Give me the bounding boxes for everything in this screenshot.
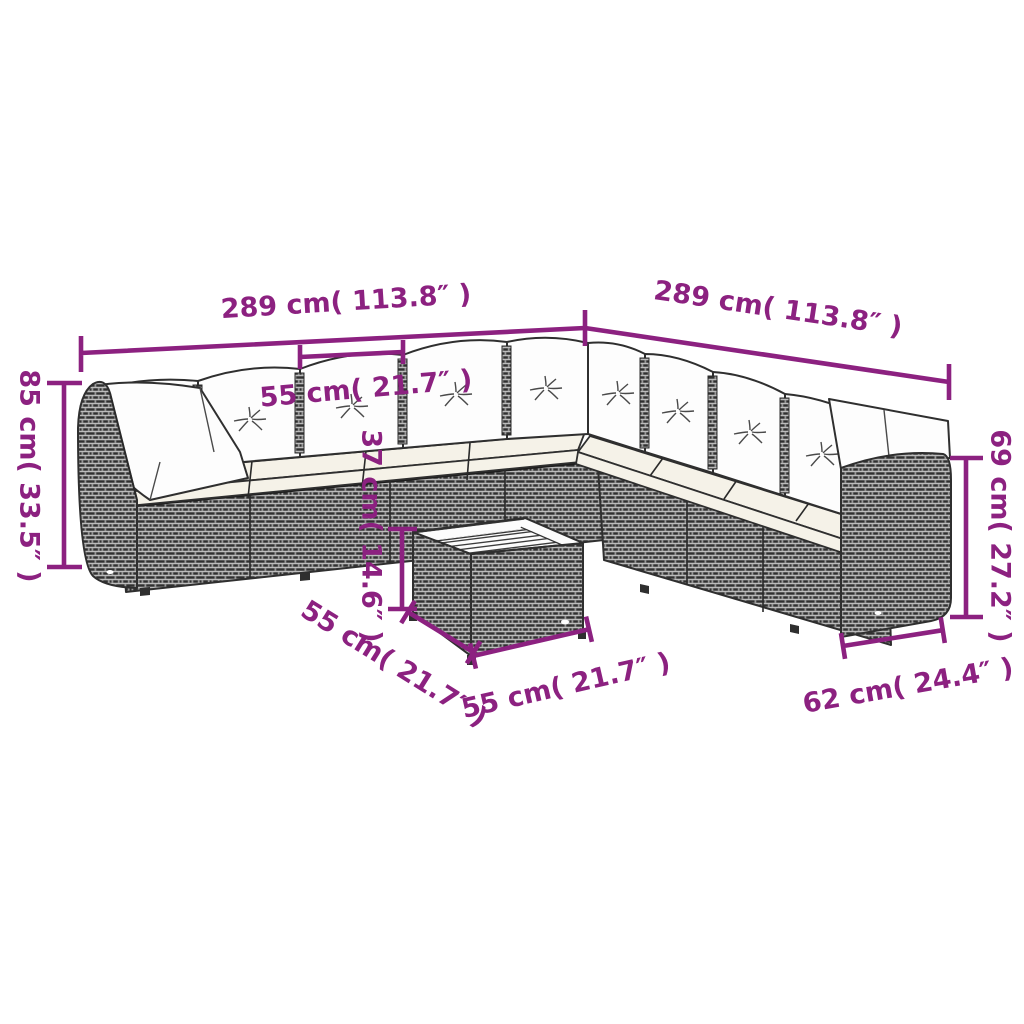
dimension-label-table-height: 37 cm( 14.6″ ) <box>356 429 387 642</box>
dimension-label-backrest-height: 69 cm( 27.2″ ) <box>985 429 1016 642</box>
corner-back-cushion <box>507 338 588 439</box>
back-cushion <box>713 372 785 496</box>
back-cushion <box>588 342 645 452</box>
dimension-label-total-height: 85 cm( 33.5″ ) <box>14 369 45 582</box>
product-dimension-diagram: 289 cm( 113.8″ ) 289 cm( 113.8″ ) 55 cm(… <box>0 0 1024 1024</box>
product-diagram-svg: 289 cm( 113.8″ ) 289 cm( 113.8″ ) 55 cm(… <box>0 0 1024 1024</box>
table-front-right-face <box>471 543 583 656</box>
dimension-total-height: 85 cm( 33.5″ ) <box>14 369 83 582</box>
dimension-backrest-height: 69 cm( 27.2″ ) <box>950 429 1016 642</box>
dimension-label-table-width: 55 cm( 21.7″ ) <box>459 647 674 725</box>
dimension-label-left-back-width: 289 cm( 113.8″ ) <box>220 279 472 325</box>
back-cushion <box>645 354 713 473</box>
right-armrest <box>841 453 951 637</box>
dimension-label-right-back-width: 289 cm( 113.8″ ) <box>652 275 905 343</box>
dimension-module-depth: 62 cm( 24.4″ ) <box>800 617 1015 719</box>
dimension-label-module-depth: 62 cm( 24.4″ ) <box>800 652 1015 720</box>
